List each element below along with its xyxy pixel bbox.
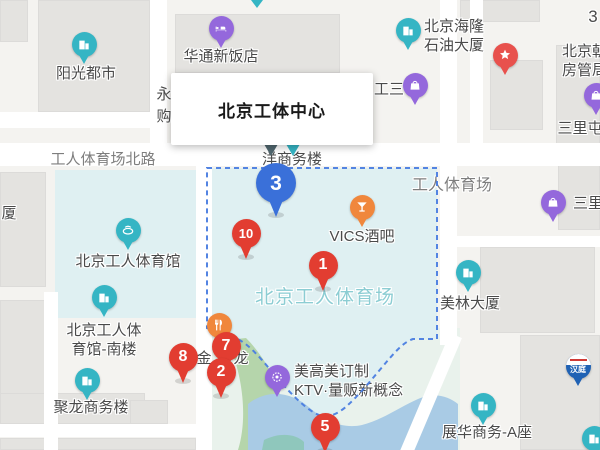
- info-box[interactable]: 北京工体中心: [171, 73, 373, 145]
- building-icon: [72, 32, 97, 57]
- pin-tail: [215, 384, 227, 398]
- marker-number: 1: [319, 257, 328, 273]
- marker-circle: 2: [207, 358, 236, 387]
- building-icon: [92, 285, 117, 310]
- marker-circle: 10: [232, 219, 261, 248]
- bed-icon: [209, 16, 234, 41]
- marker-number: 8: [179, 349, 188, 365]
- ktv-icon: [265, 365, 290, 390]
- marker-circle: 7: [212, 332, 241, 361]
- stadium-icon: [116, 218, 141, 243]
- pin-tail: [403, 41, 413, 50]
- pin-tail: [82, 391, 92, 400]
- pin-tail: [573, 377, 583, 386]
- building-icon: [582, 426, 600, 450]
- hidden-pin-tip: [286, 144, 300, 156]
- pin-tail: [317, 277, 329, 291]
- marker-number: 3: [270, 173, 282, 194]
- pin-tail: [591, 106, 600, 115]
- marker-circle: 8: [169, 343, 198, 372]
- pin-tail: [357, 218, 367, 227]
- pin-tail: [216, 39, 226, 48]
- cocktail-icon: [350, 195, 375, 220]
- pin-tail: [548, 213, 558, 222]
- marker-circle: 1: [309, 251, 338, 280]
- pin-tail: [240, 245, 252, 259]
- bag-icon: [541, 190, 566, 215]
- pin-tail: [500, 66, 510, 75]
- marker-circle: 5: [311, 413, 340, 442]
- pin-tail: [410, 96, 420, 105]
- marker-number: 7: [222, 338, 231, 354]
- building-icon: [75, 368, 100, 393]
- building-icon: [456, 260, 481, 285]
- pin-tail: [123, 241, 133, 250]
- marker-number: 2: [217, 364, 226, 380]
- hidden-pin-tip: [264, 144, 278, 156]
- hanting-icon: 汉庭: [566, 354, 591, 379]
- star-icon: [493, 43, 518, 68]
- info-box-title: 北京工体中心: [218, 97, 326, 122]
- pin-tail: [79, 55, 89, 64]
- clipped-pin-tip: [251, 0, 263, 8]
- marker-number: 5: [321, 419, 330, 435]
- building-icon: [471, 393, 496, 418]
- marker-circle: 3: [256, 163, 296, 203]
- marker-number: 10: [239, 227, 253, 240]
- building-icon: [396, 18, 421, 43]
- bag-icon: [403, 73, 428, 98]
- pin-tail: [177, 369, 189, 383]
- pin-tail: [269, 200, 283, 217]
- pin-tail: [478, 416, 488, 425]
- pin-tail: [463, 283, 473, 292]
- pin-tail: [319, 439, 331, 450]
- map-canvas[interactable]: 北京工体中心 阳光都市华通新饭店北京海隆石油大厦北京朝房管局三里屯三里屯北京工人…: [0, 0, 600, 450]
- pin-tail: [99, 308, 109, 317]
- pin-tail: [272, 388, 282, 397]
